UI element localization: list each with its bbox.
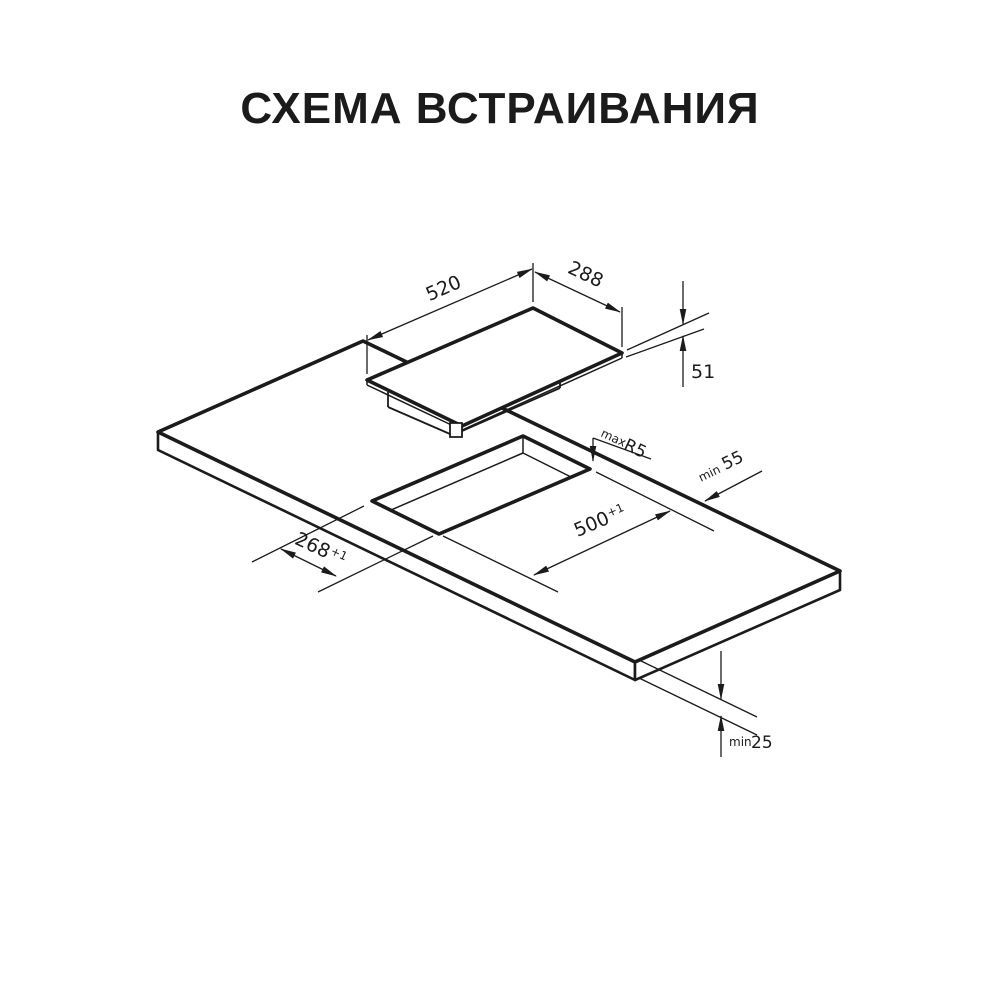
dim-25-prefix: min: [729, 735, 752, 749]
dim-55-label: min 55: [694, 447, 746, 486]
dim-25-value: 25: [751, 733, 773, 753]
dim-55-value: 55: [719, 447, 747, 474]
dim-51-value: 51: [691, 361, 715, 383]
dim-51-extension-lines: [626, 313, 709, 357]
installation-diagram: 500 +1 268 +1 max R5 min 55 min 25: [0, 0, 1000, 1000]
dim-288-label: 288: [564, 257, 606, 292]
hob-foot: [450, 423, 462, 437]
dim-288-value: 288: [564, 257, 606, 292]
dim-55-prefix: min: [696, 462, 722, 485]
page: СХЕМА ВСТРАИВАНИЯ 500 +1 268 +1: [0, 0, 1000, 1000]
